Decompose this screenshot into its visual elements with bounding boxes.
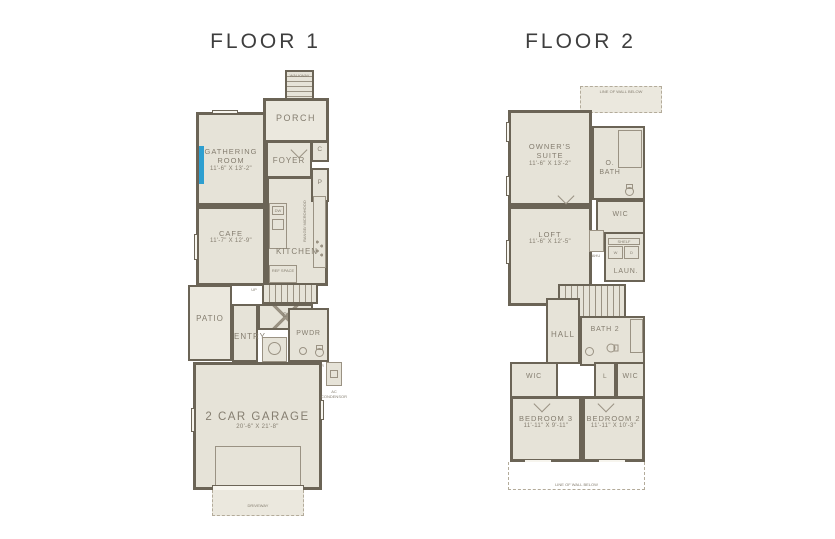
ahu-closet xyxy=(589,230,604,252)
garage-door-panel xyxy=(215,446,301,488)
foyer-label: FOYER xyxy=(266,156,312,166)
cafe-dims: 11'-7" X 12'-9" xyxy=(196,238,266,246)
room-cafe xyxy=(196,206,266,286)
closet-c-label: C xyxy=(311,146,329,154)
sink-icon xyxy=(585,347,594,356)
bedroom3-name: BEDROOM 3 xyxy=(510,414,582,423)
bedroom2-dims: 11'-11" X 10'-3" xyxy=(582,423,645,431)
wic-owner-label: WIC xyxy=(596,211,645,220)
stairs-up xyxy=(262,283,318,304)
bath2-label: BATH 2 xyxy=(574,326,636,335)
wic-bed2-label: WIC xyxy=(616,373,645,382)
owners-suite-name: OWNER'S SUITE xyxy=(518,142,582,161)
ahu-label: AHU xyxy=(586,253,606,258)
pantry-label: P xyxy=(311,179,329,187)
owners-suite-label: OWNER'S SUITE 11'-6" X 13'-2" xyxy=(518,142,582,168)
sink-icon xyxy=(299,347,307,355)
tankless-heater-icon xyxy=(268,342,281,355)
tub xyxy=(630,319,643,353)
dishwasher-label: DW xyxy=(272,208,284,213)
garage-name: 2 CAR GARAGE xyxy=(193,410,322,424)
gathering-label: GATHERING ROOM 11'-6" X 13'-2" xyxy=(201,147,261,173)
driveway-label: DRIVEWAY xyxy=(212,503,304,508)
floor2-title: FLOOR 2 xyxy=(498,30,663,54)
window-marker xyxy=(506,122,510,142)
walkway-label: WALKWAY xyxy=(285,73,314,78)
toilet-icon xyxy=(625,184,634,196)
bedroom2-label: BEDROOM 2 11'-11" X 10'-3" xyxy=(582,414,645,431)
ac-label: AC CONDENSOR xyxy=(318,389,350,399)
wic-bed3-label: WIC xyxy=(510,373,558,382)
shelf-label: SHELF xyxy=(608,239,640,244)
patio-label: PATIO xyxy=(188,314,232,324)
bedroom3-dims: 11'-11" X 9'-11" xyxy=(510,423,582,431)
stairs-up-label: UP xyxy=(248,287,260,292)
floor1-title: FLOOR 1 xyxy=(183,30,348,54)
dryer-label: D xyxy=(624,250,639,255)
garage-label: 2 CAR GARAGE 20'-6" X 21'-8" xyxy=(193,410,322,432)
ac-unit-fan xyxy=(330,370,338,378)
toilet-icon xyxy=(607,344,619,353)
wall-below-bottom-label: LINE OF WALL BELOW xyxy=(508,482,645,487)
window-marker xyxy=(506,176,510,196)
powder-label: PWDR xyxy=(288,330,329,339)
laundry-label: LAUN. xyxy=(607,268,645,277)
kitchen-label: KITCHEN xyxy=(266,247,328,257)
cafe-name: CAFE xyxy=(196,229,266,238)
owners-suite-dims: 11'-6" X 13'-2" xyxy=(518,161,582,169)
porch-label: PORCH xyxy=(263,113,329,124)
washer-label: W xyxy=(608,250,623,255)
bedroom2-name: BEDROOM 2 xyxy=(582,414,645,423)
range-label: RANGE/ MICROHOOD xyxy=(302,206,308,242)
loft-dims: 11'-6" X 12'-5" xyxy=(508,239,592,247)
window-marker xyxy=(212,110,238,114)
ref-space-label: REF SPACE xyxy=(269,268,297,273)
garage-dims: 20'-6" X 21'-8" xyxy=(193,424,322,432)
island-sink xyxy=(272,219,284,230)
gathering-dims: 11'-6" X 13'-2" xyxy=(201,166,261,174)
linen-label: L xyxy=(594,373,616,381)
bedroom3-label: BEDROOM 3 11'-11" X 9'-11" xyxy=(510,414,582,431)
floorplan-canvas: FLOOR 1 WALKWAY DN PORCH GATHERING ROOM … xyxy=(0,0,835,539)
loft-label: LOFT 11'-6" X 12'-5" xyxy=(508,230,592,247)
toilet-icon xyxy=(315,345,324,357)
wall-below-top-label: LINE OF WALL BELOW xyxy=(580,89,662,94)
loft-name: LOFT xyxy=(508,230,592,239)
cafe-label: CAFE 11'-7" X 12'-9" xyxy=(196,229,266,246)
owners-bath-label: O. BATH xyxy=(597,160,623,178)
gathering-name: GATHERING ROOM xyxy=(201,147,261,166)
